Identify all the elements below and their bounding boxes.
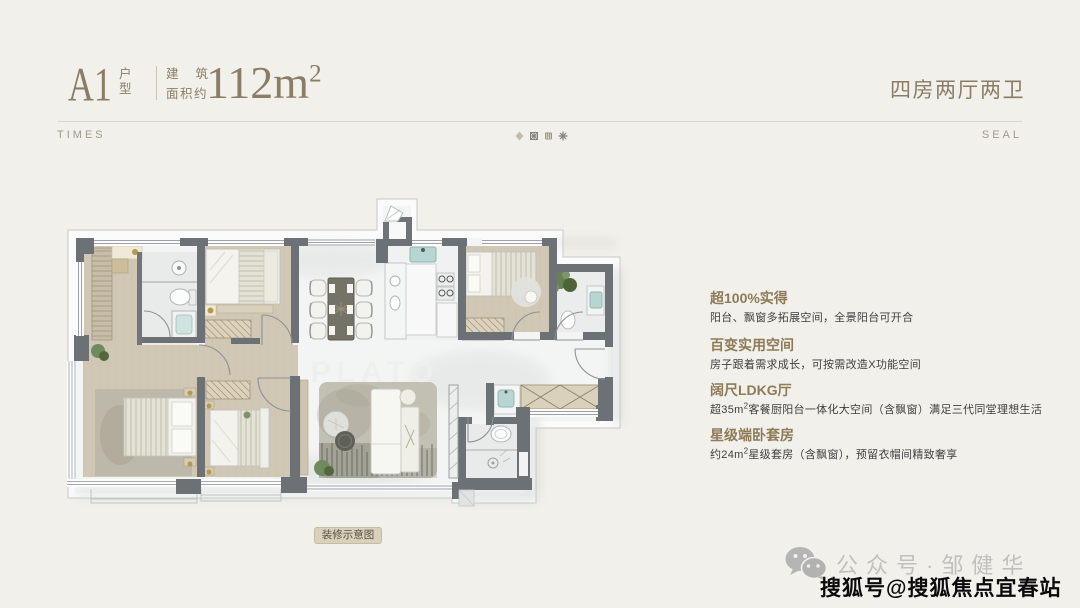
svg-text:PLATO: PLATO bbox=[311, 356, 440, 389]
